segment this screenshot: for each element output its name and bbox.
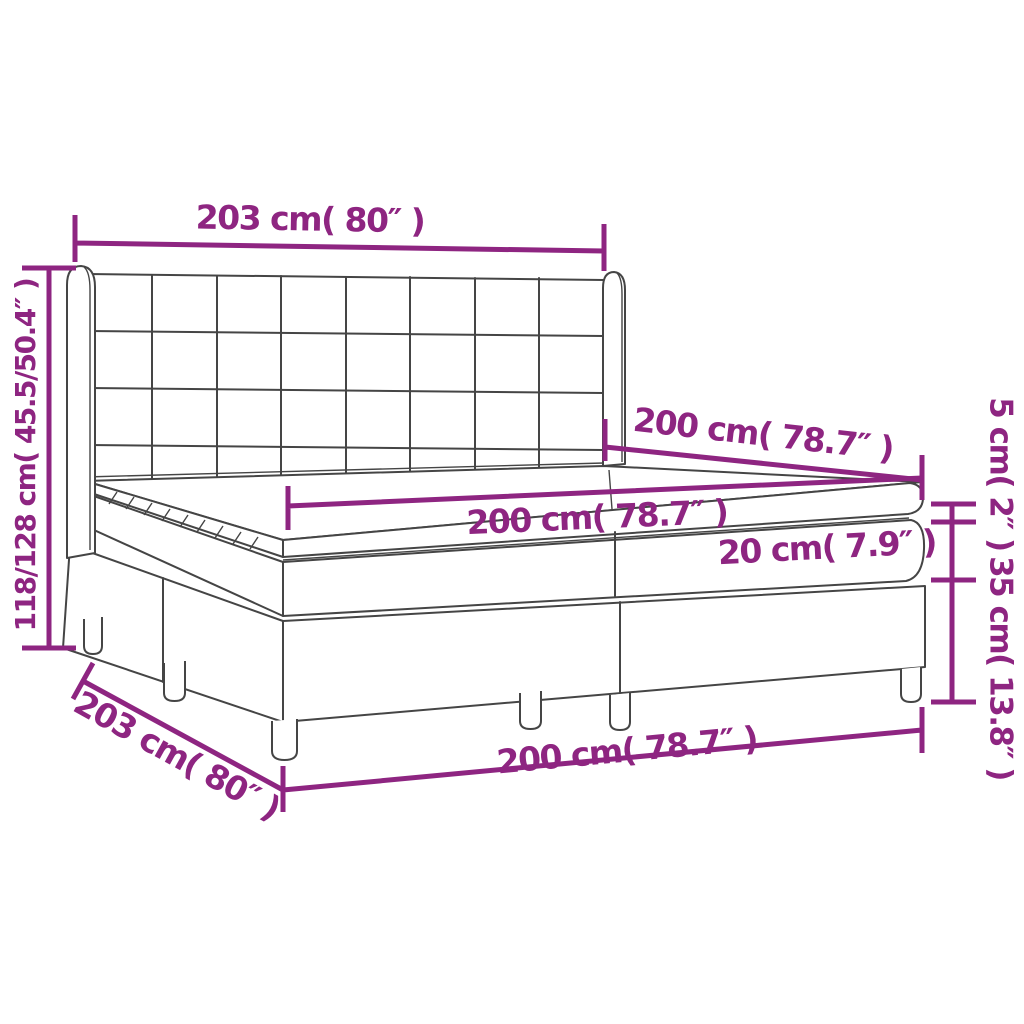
dim-label-base-height: 35 cm( 13.8″ ) xyxy=(983,556,1019,780)
leg xyxy=(520,691,541,729)
leg xyxy=(610,693,630,730)
bed-dimension-drawing: 203 cm( 80″ ) 118/128 cm( 45.5/50.4″ ) 2… xyxy=(0,0,1024,1024)
dim-label-bed-length: 200 cm( 78.7″ ) xyxy=(631,400,895,468)
leg xyxy=(901,667,921,702)
dim-label-overall-height: 118/128 cm( 45.5/50.4″ ) xyxy=(9,279,42,632)
product-dimension-diagram: 203 cm( 80″ ) 118/128 cm( 45.5/50.4″ ) 2… xyxy=(0,0,1024,1024)
leg xyxy=(84,617,102,654)
leg xyxy=(164,661,185,701)
dimension-right-heights: 5 cm( 2″ ) 35 cm( 13.8″ ) xyxy=(931,397,1019,780)
dim-label-headboard-width: 203 cm( 80″ ) xyxy=(195,198,424,241)
dimension-base-length: 200 cm( 78.7″ ) xyxy=(283,707,922,812)
dim-label-topper-thickness: 5 cm( 2″ ) xyxy=(983,397,1019,550)
leg xyxy=(272,719,297,760)
dimension-headboard-width: 203 cm( 80″ ) xyxy=(75,198,604,271)
headboard xyxy=(85,274,604,486)
left-wing xyxy=(67,266,95,558)
